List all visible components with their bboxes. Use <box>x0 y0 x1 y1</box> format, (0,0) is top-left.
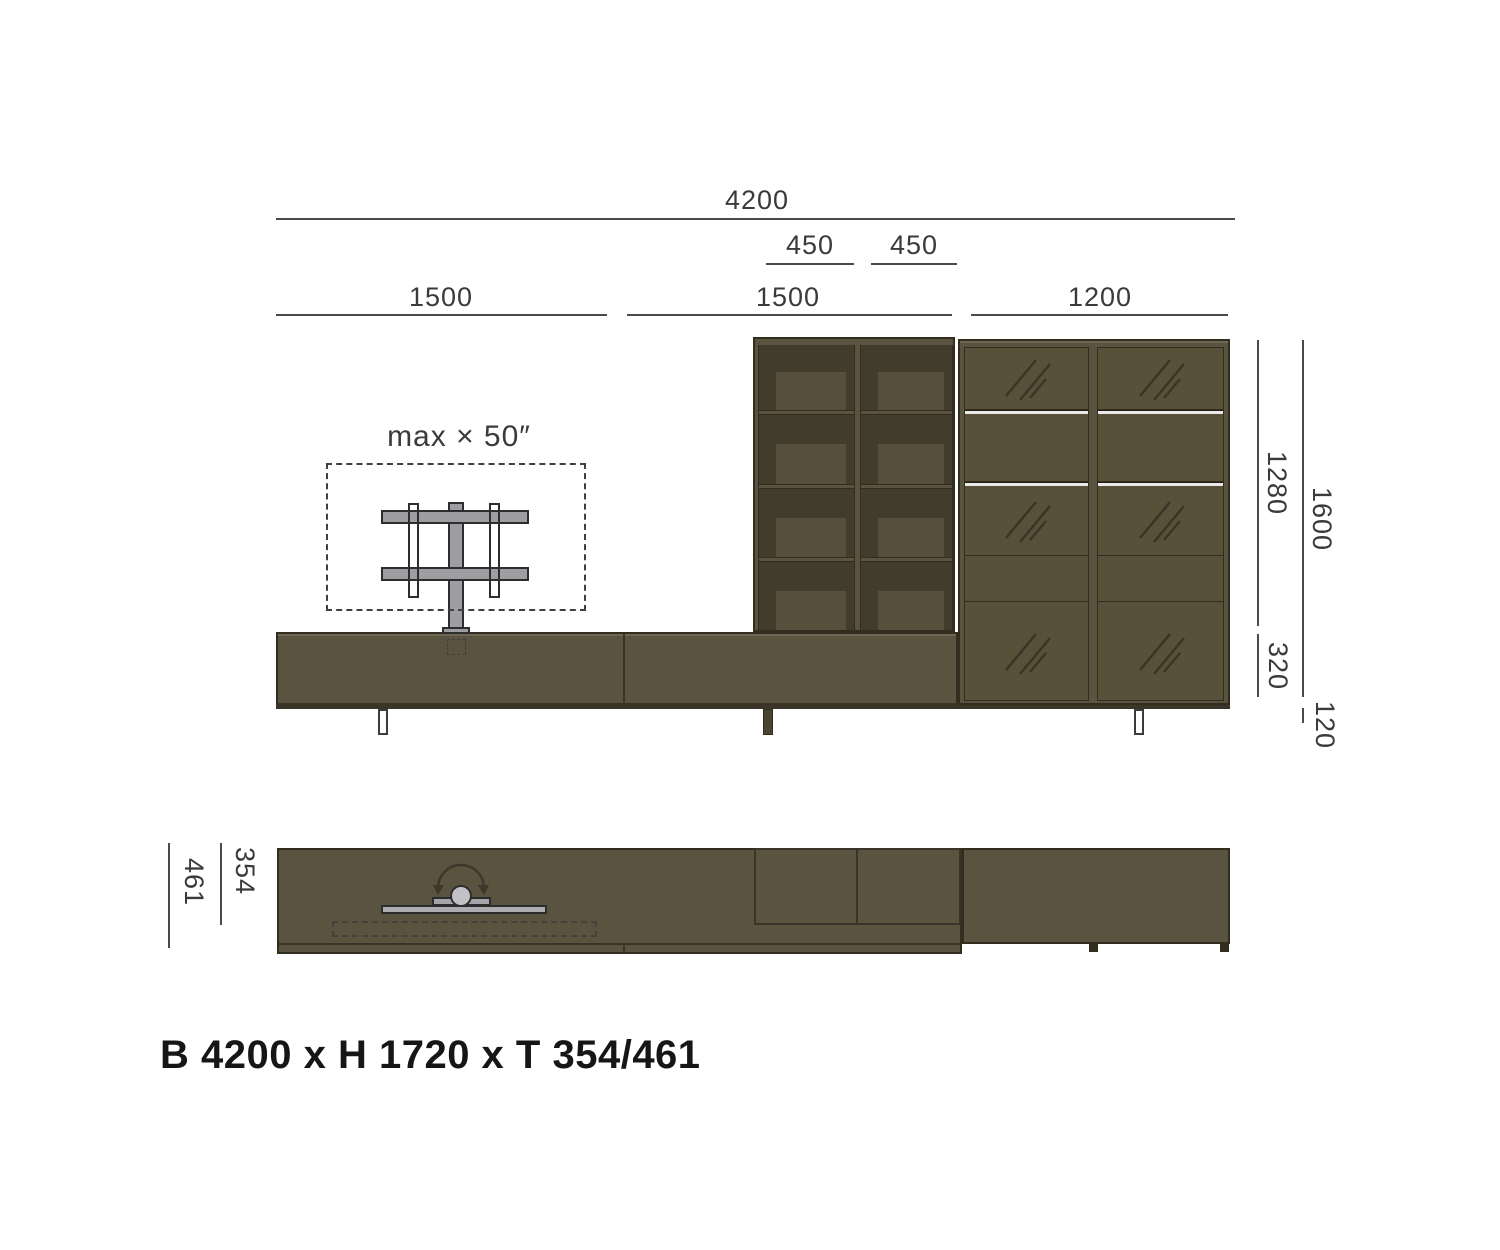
dim-overall-width-line <box>276 218 1235 220</box>
dim-upper-height-label: 1280 <box>1262 413 1292 553</box>
shelf-back-panel <box>776 444 846 484</box>
dim-leg-height-line <box>1302 708 1304 723</box>
shelf-cell <box>861 345 952 410</box>
shelf-back-panel <box>878 518 944 557</box>
dim-unit-height-line <box>1302 340 1304 697</box>
plan-front-edge-line <box>279 943 960 945</box>
glass-cabinet <box>958 339 1230 705</box>
dim-shelf-col-right-line <box>871 263 957 265</box>
plan-cabinet-foot <box>1089 944 1098 952</box>
glass-pane <box>965 348 1088 410</box>
shelf-cell <box>759 562 854 630</box>
glass-reflection-icon <box>1128 354 1194 404</box>
tv-bracket-base-plate <box>442 627 470 634</box>
shelf-cell <box>759 345 854 410</box>
cabinet-door-right <box>1097 347 1224 701</box>
shelf-cell <box>759 489 854 557</box>
bench-seam <box>623 634 625 703</box>
glass-reflection-icon <box>994 496 1060 546</box>
dim-segment-left-line <box>276 314 607 316</box>
dim-overall-width-label: 4200 <box>687 185 827 215</box>
plan-bench-seam <box>623 943 625 954</box>
shelf-back-panel <box>878 444 944 484</box>
dim-segment-middle-line <box>627 314 952 316</box>
plan-cabinet-section <box>962 848 1230 944</box>
shelf-back-panel <box>776 591 846 630</box>
dim-segment-middle-label: 1500 <box>718 282 858 312</box>
cable-outlet-dashed <box>447 639 466 655</box>
dim-upper-height-line <box>1257 340 1259 626</box>
shelf-cell <box>861 562 952 630</box>
leg-left <box>378 709 388 735</box>
plan-shelf-divider <box>856 848 858 925</box>
glass-reflection-icon <box>1128 624 1194 678</box>
dim-segment-left-label: 1500 <box>371 282 511 312</box>
shelf-unit <box>753 337 955 632</box>
shelf-cell <box>759 415 854 484</box>
furniture-spec-drawing: 4200 450 450 1500 1500 1200 1280 1600 32… <box>0 0 1500 1250</box>
leg-middle <box>763 709 773 735</box>
glass-reflection-icon <box>994 354 1060 404</box>
dim-depth-max-line <box>168 843 170 948</box>
shelf-cell <box>861 489 952 557</box>
shelf-column-left <box>758 345 855 630</box>
tv-size-note: max × 50″ <box>319 420 599 454</box>
leg-right <box>1134 709 1144 735</box>
glass-reflection-icon <box>1128 496 1194 546</box>
shelf-cell <box>861 415 952 484</box>
shelf-column-right <box>860 345 953 630</box>
glass-pane <box>1098 486 1223 556</box>
plan-tv-envelope-dashed <box>332 921 597 937</box>
shelf-back-panel <box>878 372 944 410</box>
door-panel <box>1098 414 1223 482</box>
dim-unit-height-label: 1600 <box>1307 449 1337 589</box>
bench <box>276 632 958 705</box>
dim-depth-max-label: 461 <box>179 812 209 952</box>
dim-depth-body-label: 354 <box>230 801 260 941</box>
dim-shelf-col-left-line <box>766 263 854 265</box>
dim-bench-height-line <box>1257 634 1259 697</box>
shelf-back-panel <box>776 372 846 410</box>
plan-cabinet-foot <box>1220 944 1229 952</box>
dim-leg-height-label: 120 <box>1310 655 1340 795</box>
shelf-back-panel <box>776 518 846 557</box>
bench-top-edge <box>278 634 956 636</box>
glass-reflection-icon <box>994 624 1060 678</box>
dim-shelf-col-right-label: 450 <box>844 230 984 260</box>
dim-segment-right-label: 1200 <box>1030 282 1170 312</box>
cabinet-top-edge <box>960 341 1228 343</box>
caption-text: B 4200 x H 1720 x T 354/461 <box>160 1033 701 1078</box>
dim-depth-body-line <box>220 843 222 925</box>
tv-envelope-dashed <box>326 463 586 611</box>
door-panel <box>1098 556 1223 602</box>
glass-pane <box>1098 348 1223 410</box>
rotation-arrow-icon <box>430 862 492 896</box>
glass-pane <box>965 602 1088 700</box>
cabinet-door-left <box>964 347 1089 701</box>
glass-pane <box>965 486 1088 556</box>
dim-bench-height-label: 320 <box>1263 596 1293 736</box>
shelf-back-panel <box>878 591 944 630</box>
dim-segment-right-line <box>971 314 1228 316</box>
glass-pane <box>1098 602 1223 700</box>
door-panel <box>965 556 1088 602</box>
door-panel <box>965 414 1088 482</box>
